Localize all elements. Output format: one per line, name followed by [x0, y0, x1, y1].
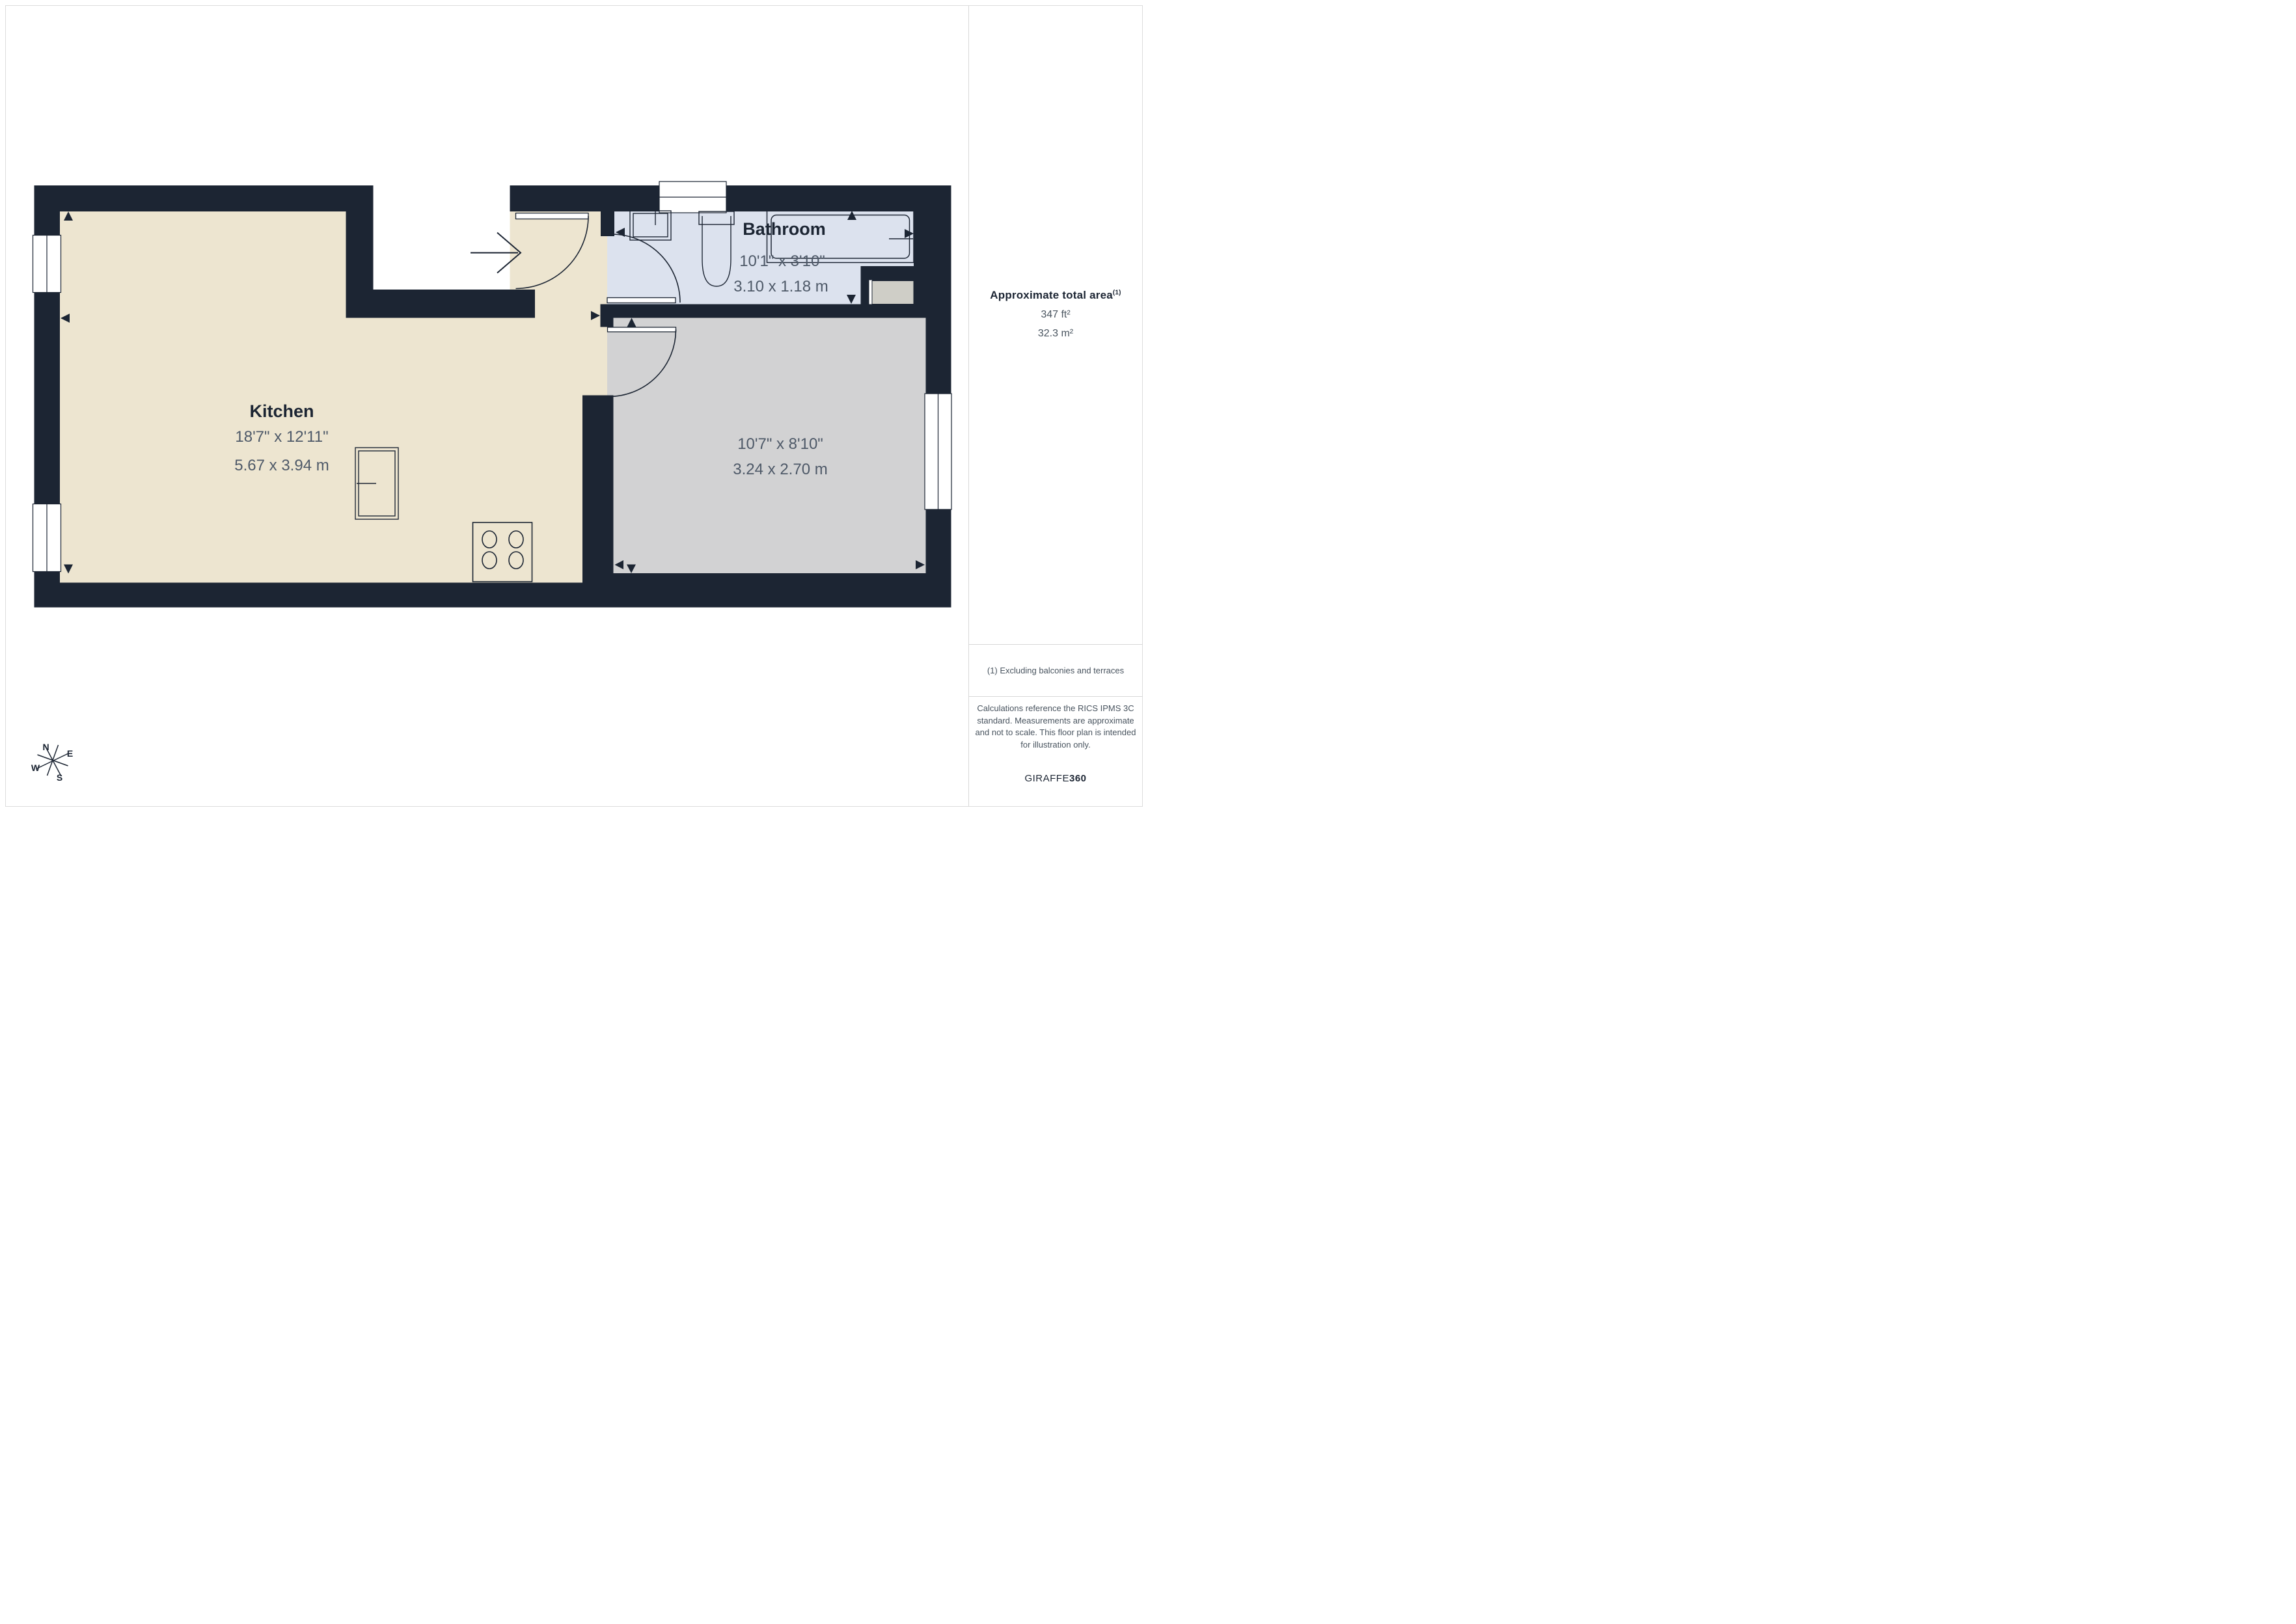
total-area-m: 32.3 m² [969, 328, 1142, 340]
total-area-heading-text: Approximate total area [990, 289, 1113, 301]
kitchen-room-wall [582, 396, 614, 583]
footnote-box: (1) Excluding balconies and terraces [969, 644, 1142, 697]
kitchen-floor [60, 211, 607, 583]
footnote-text: (1) Excluding balconies and terraces [987, 666, 1124, 675]
kitchen-dimensions-imperial: 18'7" x 12'11" [235, 428, 328, 446]
compass-west-label: W [31, 763, 40, 773]
recess-bottom-wall [346, 290, 536, 318]
total-area-heading: Approximate total area(1) [969, 289, 1142, 302]
wall-stub [601, 304, 614, 327]
floorplan-page: Kitchen 18'7" x 12'11" 5.67 x 3.94 m Bat… [0, 0, 1148, 812]
total-area-ft: 347 ft² [969, 309, 1142, 321]
room-dimensions-imperial: 10'7" x 8'10" [737, 435, 823, 453]
kitchen-dimensions-metric: 5.67 x 3.94 m [234, 457, 329, 474]
bathroom-dimensions-metric: 3.10 x 1.18 m [733, 278, 828, 295]
room-dimensions-metric: 3.24 x 2.70 m [733, 461, 827, 478]
bathroom-doorway [607, 236, 614, 304]
compass-south-label: S [57, 772, 62, 783]
brand-logo: GIRAFFE360 [969, 773, 1142, 784]
room-doorway [607, 327, 614, 396]
closet-floor [872, 281, 914, 304]
bathroom-dimensions-imperial: 10'1" x 3'10" [739, 252, 825, 270]
entry-recess [374, 180, 510, 290]
compass-icon: N E W S [31, 742, 73, 783]
bathroom-label: Bathroom [743, 219, 826, 239]
disclaimer-text: Calculations reference the RICS IPMS 3C … [971, 703, 1140, 751]
total-area-block: Approximate total area(1) 347 ft² 32.3 m… [969, 289, 1142, 340]
compass-north-label: N [42, 742, 49, 752]
brand-secondary: 360 [1069, 773, 1087, 784]
closet-gap [869, 280, 873, 304]
kitchen-label: Kitchen [249, 401, 314, 421]
footnote-marker: (1) [1113, 289, 1121, 296]
window-icon-top [659, 182, 726, 213]
hall-bathroom-wall [601, 211, 614, 236]
window-icon-left-upper [33, 236, 61, 293]
brand-primary: GIRAFFE [1024, 773, 1069, 784]
compass-east-label: E [67, 748, 73, 759]
window-icon-left-lower [33, 504, 61, 572]
window-icon-right [925, 394, 951, 509]
